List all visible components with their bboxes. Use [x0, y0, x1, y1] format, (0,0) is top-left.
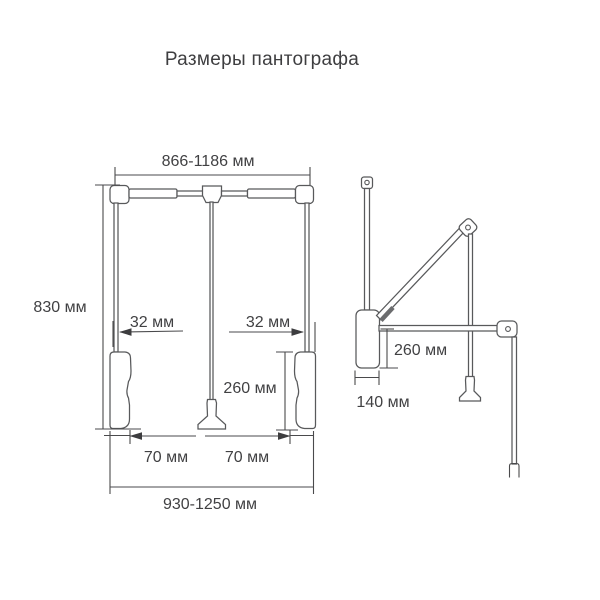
- hanger-pivot-hole-icon: [506, 327, 511, 332]
- handle-knob: [460, 377, 481, 402]
- arrow-left-icon: [130, 432, 143, 440]
- dim-arm-drop-label: 260 мм: [394, 342, 447, 359]
- arrow-right-icon: [292, 328, 305, 336]
- mount-hole-icon: [365, 180, 369, 184]
- center-pull-rod: [210, 202, 213, 400]
- dim-top-width: 866-1186 мм: [115, 153, 310, 188]
- corner-joint-right: [296, 186, 314, 204]
- pull-rod: [469, 234, 473, 377]
- dim-top-width-label: 866-1186 мм: [162, 153, 255, 170]
- telescopic-sleeve-left: [129, 189, 177, 198]
- dim-grip-length: 260 мм: [223, 352, 298, 430]
- tube-right: [222, 191, 248, 196]
- side-tube-left: [114, 203, 118, 352]
- dim-grip-offset-left: 70 мм: [104, 430, 196, 466]
- tube-left: [177, 191, 203, 196]
- center-connector: [203, 186, 222, 203]
- front-view: 866-1186 мм: [33, 153, 315, 513]
- center-handle-knob: [198, 400, 226, 430]
- dim-grip-offset-right-label: 70 мм: [225, 449, 269, 466]
- dimension-drawing: 866-1186 мм: [0, 0, 600, 600]
- dim-body-depth-label: 140 мм: [356, 394, 409, 411]
- dim-tube-offset-left: 32 мм: [113, 314, 183, 347]
- frame-top-rail: [110, 186, 314, 204]
- arrow-right-icon: [278, 432, 291, 440]
- dim-grip-length-label: 260 мм: [223, 380, 276, 397]
- dim-grip-offset-right: 70 мм: [205, 430, 313, 466]
- dim-tube-offset-right-label: 32 мм: [246, 314, 290, 331]
- side-view: 260 мм 140 мм: [355, 177, 519, 478]
- grip-right: [295, 352, 316, 429]
- horizontal-bar: [379, 326, 498, 332]
- pantograph-dimensions-page: Размеры пантографа 866-1186 мм: [0, 0, 600, 600]
- dim-tube-offset-left-label: 32 мм: [130, 314, 174, 331]
- pivot-hole-icon: [466, 225, 471, 230]
- dim-arm-drop: 260 мм: [380, 329, 448, 368]
- dim-height-label: 830 мм: [33, 299, 86, 316]
- hanger-rod: [512, 337, 517, 464]
- dim-bottom-width-label: 930-1250 мм: [163, 496, 257, 513]
- dim-bottom-width: 930-1250 мм: [110, 431, 314, 513]
- lift-arm: [377, 226, 466, 320]
- dim-tube-offset-right: 32 мм: [229, 314, 315, 352]
- dim-body-depth: 140 мм: [355, 371, 410, 412]
- dim-grip-offset-left-label: 70 мм: [144, 449, 188, 466]
- mount-post: [365, 189, 370, 311]
- corner-joint-left: [110, 186, 129, 204]
- side-tube-right: [305, 203, 309, 352]
- grip-left: [110, 352, 131, 429]
- lift-body: [356, 310, 380, 368]
- telescopic-sleeve-right: [248, 189, 296, 198]
- hanger-bar-end: [510, 464, 520, 478]
